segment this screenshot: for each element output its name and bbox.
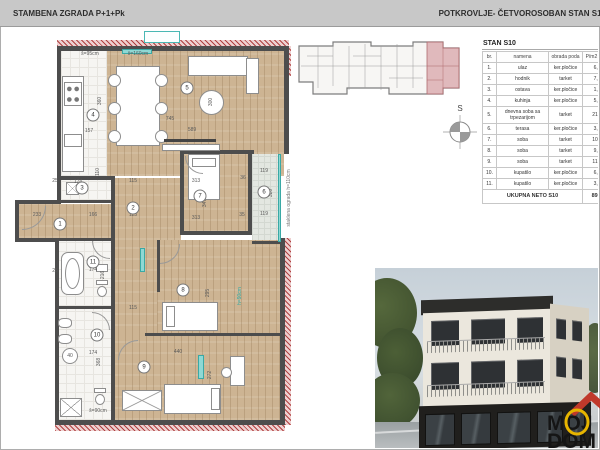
sofa-side xyxy=(246,58,259,94)
roof-edge-hatch-right xyxy=(285,238,291,425)
dimension-label: š=95cm xyxy=(81,51,99,57)
table-cell: kupatilo xyxy=(497,168,549,179)
pillow xyxy=(166,306,175,327)
dining-table xyxy=(116,66,160,146)
table-cell: 7,60 xyxy=(583,74,599,85)
table-row: 2.hodniktarket7,60 xyxy=(483,74,599,85)
window-spec-label xyxy=(144,31,180,43)
compass-label: S xyxy=(440,104,480,113)
table-row: 4.kuhinjaker.pločice5,84 xyxy=(483,96,599,107)
floor-plan: š=95cmš=160cm360300745589157363131152511… xyxy=(12,30,296,432)
dimension-label: 25 xyxy=(52,268,58,274)
dimension-label: 313 xyxy=(192,178,200,184)
table-cell: ker.pločice xyxy=(549,85,583,96)
table-cell: kuhinja xyxy=(497,96,549,107)
table-cell: ker.pločice xyxy=(549,124,583,135)
dimension-label: h=90cm xyxy=(237,287,243,305)
dimension-label: 233 xyxy=(33,212,41,218)
dimension-label: 115 xyxy=(129,178,137,184)
table-title: STAN S10 xyxy=(482,38,598,50)
room-number-badge: 4 xyxy=(87,109,100,122)
table-cell: 9,23 xyxy=(583,146,599,157)
table-cell: 4. xyxy=(483,96,497,107)
table-cell: soba xyxy=(497,157,549,168)
dimension-label: 110 xyxy=(95,168,101,176)
table-cell: ker.pločice xyxy=(549,63,583,74)
table-footer-row: UKUPNA NETO S10 89,20 xyxy=(483,190,599,204)
table-cell: 7. xyxy=(483,135,497,146)
room-number-badge: 10 xyxy=(91,329,104,342)
kitchen-sink xyxy=(64,134,82,147)
dimension-label: 115 xyxy=(129,305,137,311)
apartment-table: br. namena obrada poda P/m2 100% 1.ulazk… xyxy=(482,51,598,204)
tv xyxy=(164,139,216,142)
project-title: STAMBENA ZGRADA P+1+Pk xyxy=(13,9,125,18)
dimension-label: 119 xyxy=(260,211,268,217)
table-row: 7.sobatarket10,77 xyxy=(483,135,599,146)
table-row: 3.ostavaker.pločice1,91 xyxy=(483,85,599,96)
shower xyxy=(60,398,82,417)
dimension-label: 36 xyxy=(240,175,246,181)
stove-icon xyxy=(64,82,82,106)
room-number-badge: 11 xyxy=(87,256,100,269)
toilet-bowl xyxy=(95,394,105,405)
toilet-bowl xyxy=(97,286,107,297)
compass-icon xyxy=(440,113,480,151)
chair xyxy=(155,74,168,87)
table-cell: ker.pločice xyxy=(549,179,583,190)
dimension-label: 440 xyxy=(174,349,182,355)
moj-dom-logo: MOJ DOM xyxy=(546,392,600,450)
terrace-glass-railing xyxy=(278,154,281,242)
dimension-label: 157 xyxy=(85,128,93,134)
chair xyxy=(155,102,168,115)
room-number-badge: 3 xyxy=(76,182,89,195)
desk xyxy=(230,356,245,386)
table-cell: tarket xyxy=(549,157,583,168)
room-number-badge: 9 xyxy=(138,361,151,374)
table-cell: 9. xyxy=(483,157,497,168)
dimension-label: 300 xyxy=(208,98,214,106)
table-cell: ostava xyxy=(497,85,549,96)
chair xyxy=(108,74,121,87)
table-row: 10.kupatiloker.pločice6,89 xyxy=(483,168,599,179)
col-povrsina: P/m2 100% xyxy=(583,52,599,63)
table-cell: hodnik xyxy=(497,74,549,85)
table-cell: soba xyxy=(497,146,549,157)
dimension-label: 368 xyxy=(96,358,102,366)
dimension-label: 40 xyxy=(67,353,73,359)
table-cell: 6,92 xyxy=(583,63,599,74)
pillow xyxy=(211,388,220,410)
table-cell: 3. xyxy=(483,85,497,96)
dimension-label: 166 xyxy=(89,212,97,218)
table-cell: 1. xyxy=(483,63,497,74)
hall-ext-floor xyxy=(111,240,157,337)
toilet-tank xyxy=(96,280,108,285)
sheet-title: POTKROVLJE- ČETVOROSOBAN STAN S10 xyxy=(439,9,600,18)
dimension-label: 360 xyxy=(97,97,103,105)
roof-edge-hatch-bottom xyxy=(55,425,285,431)
table-row: 11.kupatiloker.pločice3,65 xyxy=(483,179,599,190)
wardrobe xyxy=(122,390,162,411)
toilet-tank xyxy=(94,388,106,393)
table-cell: tarket xyxy=(549,74,583,85)
room-schedule: STAN S10 br. namena obrada poda P/m2 100… xyxy=(482,38,598,204)
col-obrada: obrada poda xyxy=(549,52,583,63)
table-cell: tarket xyxy=(549,135,583,146)
dimension-label: staklena ograda h=110cm xyxy=(286,169,292,226)
front-facade xyxy=(423,309,550,409)
tv-bench xyxy=(162,144,220,151)
table-cell: dnevna soba sa trpezarijom xyxy=(497,107,549,124)
table-cell: kupatilo xyxy=(497,179,549,190)
sofa xyxy=(188,56,248,76)
roof-window-marker xyxy=(140,248,145,272)
sink xyxy=(58,334,72,344)
table-cell: 6,89 xyxy=(583,168,599,179)
room-number-badge: 6 xyxy=(258,186,271,199)
dimension-label: 174 xyxy=(89,350,97,356)
total-label: UKUPNA NETO S10 xyxy=(483,190,583,204)
table-cell: 1,91 xyxy=(583,85,599,96)
table-cell: ker.pločice xyxy=(549,168,583,179)
room-number-badge: 5 xyxy=(181,82,194,95)
dimension-label: š=160cm xyxy=(128,51,148,57)
table-cell: 5,84 xyxy=(583,96,599,107)
table-header-row: br. namena obrada poda P/m2 100% xyxy=(483,52,599,63)
table-cell: 10,77 xyxy=(583,135,599,146)
dimension-label: 25 xyxy=(52,178,58,184)
table-cell: 11. xyxy=(483,179,497,190)
room-number-badge: 7 xyxy=(194,190,207,203)
chair xyxy=(108,130,121,143)
table-cell: soba xyxy=(497,135,549,146)
dimension-label: 313 xyxy=(192,215,200,221)
dimension-label: 119 xyxy=(260,168,268,174)
table-cell: 10. xyxy=(483,168,497,179)
roof-window-marker xyxy=(198,355,204,379)
table-row: 9.sobatarket11,96 xyxy=(483,157,599,168)
table-cell: 5. xyxy=(483,107,497,124)
room-number-badge: 2 xyxy=(127,202,140,215)
table-cell: 6. xyxy=(483,124,497,135)
room-number-badge: 1 xyxy=(54,218,67,231)
dimension-label: 589 xyxy=(188,127,196,133)
dimension-label: 35 xyxy=(239,212,245,218)
table-cell: 2. xyxy=(483,74,497,85)
table-cell: 21,16 xyxy=(583,107,599,124)
table-cell: tarket xyxy=(549,146,583,157)
table-cell: ker.pločice xyxy=(549,96,583,107)
total-value: 89,20 xyxy=(583,190,599,204)
bathtub-inner xyxy=(65,258,80,289)
table-row: 1.ulazker.pločice6,92 xyxy=(483,63,599,74)
table-row: 5.dnevna soba sa trpezarijomtarket21,16 xyxy=(483,107,599,124)
table-cell: 8. xyxy=(483,146,497,157)
col-namena: namena xyxy=(497,52,549,63)
dimension-label: 216 xyxy=(100,271,106,279)
dimension-label: 295 xyxy=(205,289,211,297)
sheet-page: STAMBENA ZGRADA P+1+Pk POTKROVLJE- ČETVO… xyxy=(0,0,600,450)
hall-floor xyxy=(111,178,181,240)
table-cell: ulaz xyxy=(497,63,549,74)
col-br: br. xyxy=(483,52,497,63)
chair xyxy=(221,367,232,378)
dimension-label: š=90cm xyxy=(89,408,107,414)
table-row: 8.sobatarket9,23 xyxy=(483,146,599,157)
table-row: 6.terasaker.pločice3,74 xyxy=(483,124,599,135)
title-bar: STAMBENA ZGRADA P+1+Pk POTKROVLJE- ČETVO… xyxy=(0,0,600,27)
table-cell: terasa xyxy=(497,124,549,135)
table-cell: 3,74 xyxy=(583,124,599,135)
table-cell: 3,65 xyxy=(583,179,599,190)
sink xyxy=(58,318,72,328)
table-cell: 11,96 xyxy=(583,157,599,168)
room-number-badge: 8 xyxy=(177,284,190,297)
north-arrow: S xyxy=(440,104,480,152)
dimension-label: 745 xyxy=(166,116,174,122)
chair xyxy=(108,102,121,115)
table-cell: tarket xyxy=(549,107,583,124)
key-plan xyxy=(293,36,467,104)
dimension-label: 272 xyxy=(207,371,213,379)
